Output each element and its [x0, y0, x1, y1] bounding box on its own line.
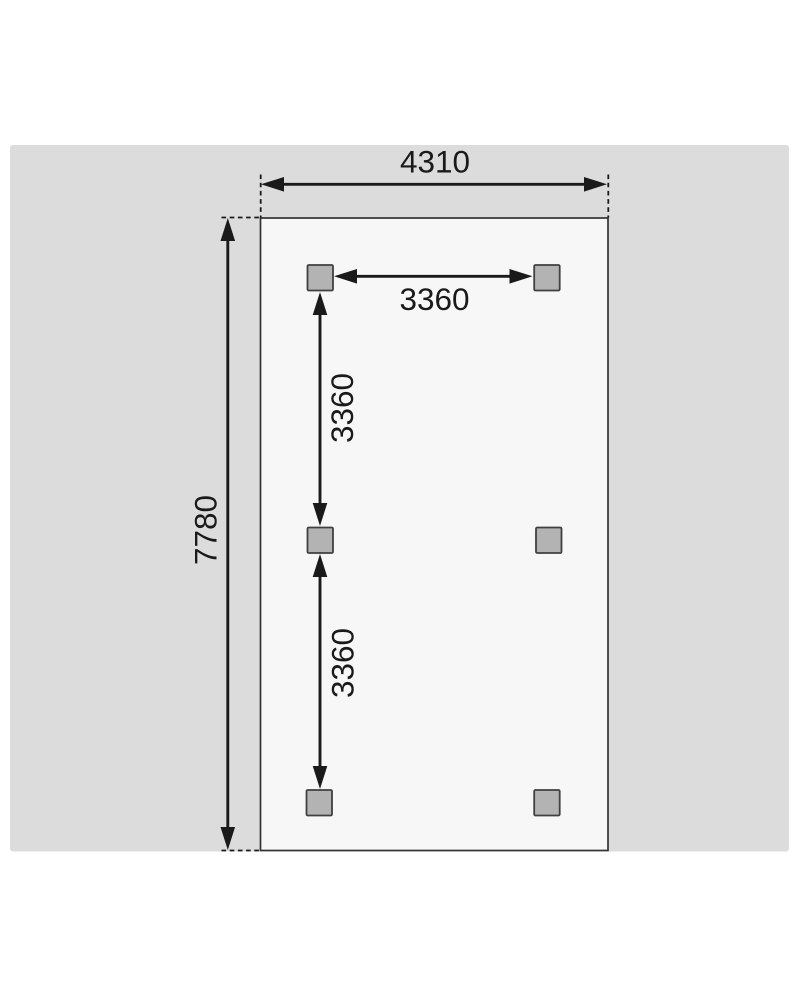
- svg-text:4310: 4310: [400, 144, 470, 180]
- svg-text:3360: 3360: [399, 281, 469, 317]
- svg-text:3360: 3360: [324, 373, 360, 443]
- svg-text:3360: 3360: [325, 628, 361, 698]
- svg-text:7780: 7780: [188, 495, 224, 565]
